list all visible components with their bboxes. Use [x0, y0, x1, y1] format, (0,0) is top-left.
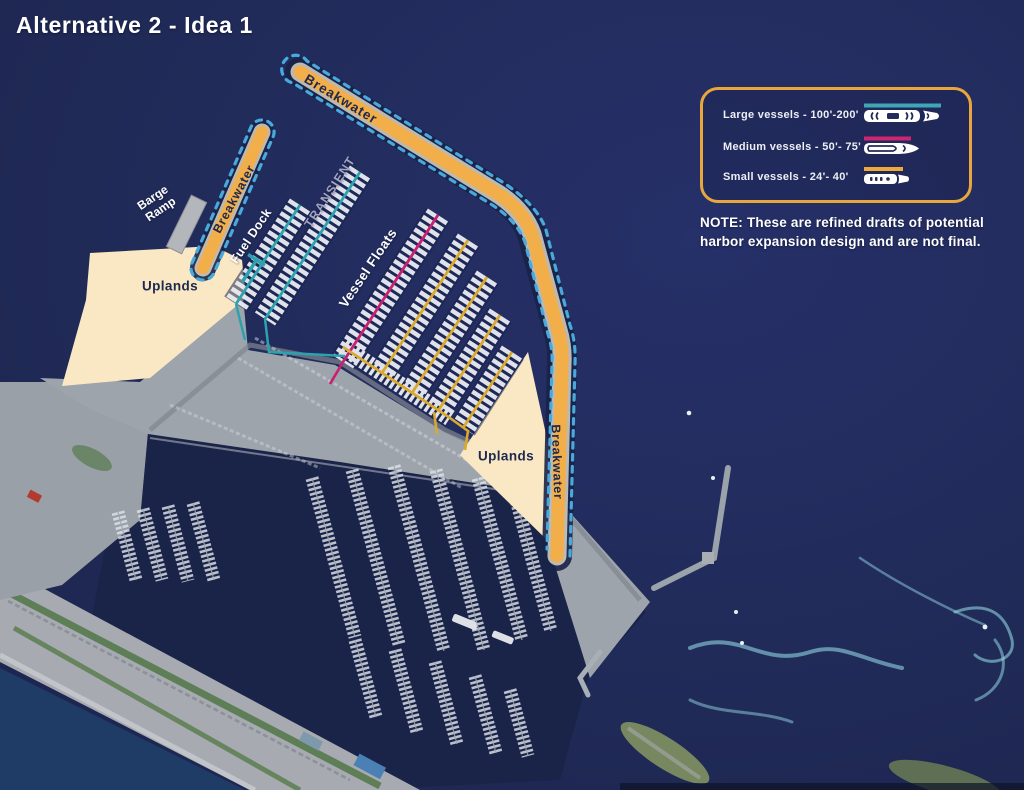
- small-vessel-icon: [863, 166, 955, 188]
- legend-label-small: Small vessels - 24'- 40': [723, 171, 863, 183]
- legend-row-large: Large vessels - 100'-200': [723, 102, 955, 128]
- legend: Large vessels - 100'-200': [700, 87, 972, 203]
- harbor-design-map: Alternative 2 - Idea 1 Breakwater Breakw…: [0, 0, 1024, 790]
- uplands-right-label: Uplands: [478, 449, 534, 464]
- large-vessel-icon: [863, 102, 955, 128]
- legend-row-small: Small vessels - 24'- 40': [723, 166, 955, 188]
- note-text: NOTE: These are refined drafts of potent…: [700, 213, 985, 251]
- medium-vessel-icon: [863, 135, 955, 159]
- legend-label-medium: Medium vessels - 50'- 75': [723, 141, 863, 153]
- uplands-left-label: Uplands: [142, 279, 198, 294]
- breakwater-right-label: Breakwater: [549, 424, 566, 500]
- legend-label-large: Large vessels - 100'-200': [723, 109, 863, 121]
- legend-row-medium: Medium vessels - 50'- 75': [723, 135, 955, 159]
- page-title: Alternative 2 - Idea 1: [16, 12, 253, 39]
